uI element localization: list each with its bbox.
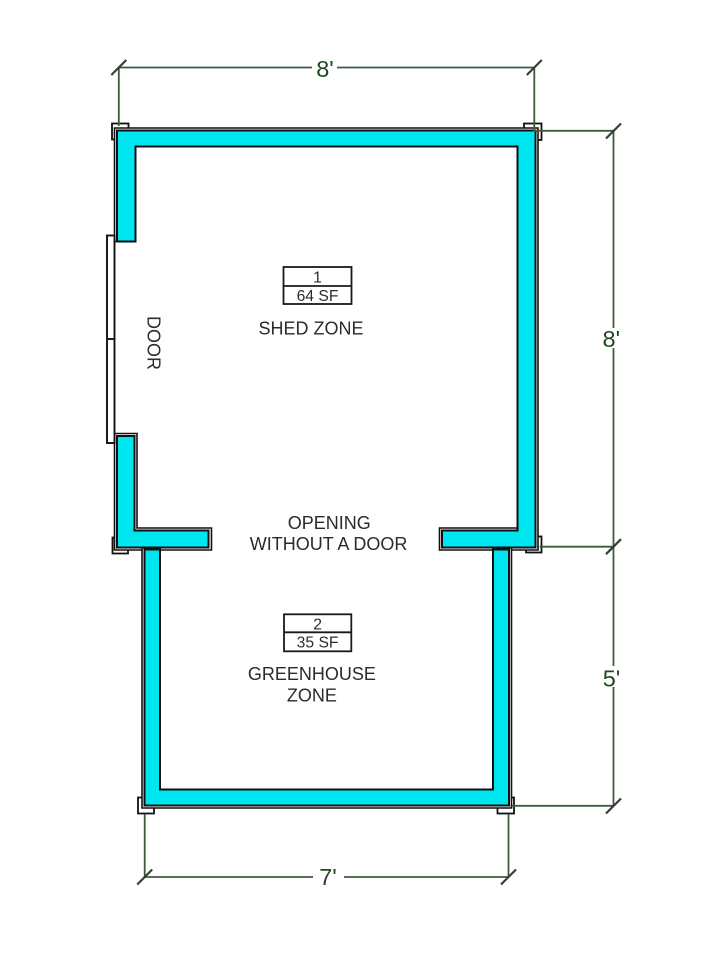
svg-text:8': 8' <box>316 56 334 82</box>
svg-text:8': 8' <box>603 326 621 352</box>
svg-text:ZONE: ZONE <box>287 685 337 705</box>
svg-text:DOOR: DOOR <box>144 316 164 370</box>
svg-text:5': 5' <box>603 666 621 692</box>
svg-text:35 SF: 35 SF <box>297 635 339 652</box>
svg-text:64 SF: 64 SF <box>297 288 339 305</box>
svg-text:2: 2 <box>313 616 322 633</box>
svg-text:1: 1 <box>313 270 322 287</box>
svg-text:WITHOUT A DOOR: WITHOUT A DOOR <box>250 534 408 554</box>
svg-text:OPENING: OPENING <box>288 513 371 533</box>
svg-text:GREENHOUSE: GREENHOUSE <box>248 664 376 684</box>
svg-text:SHED ZONE: SHED ZONE <box>258 318 363 338</box>
svg-text:7': 7' <box>319 864 337 890</box>
